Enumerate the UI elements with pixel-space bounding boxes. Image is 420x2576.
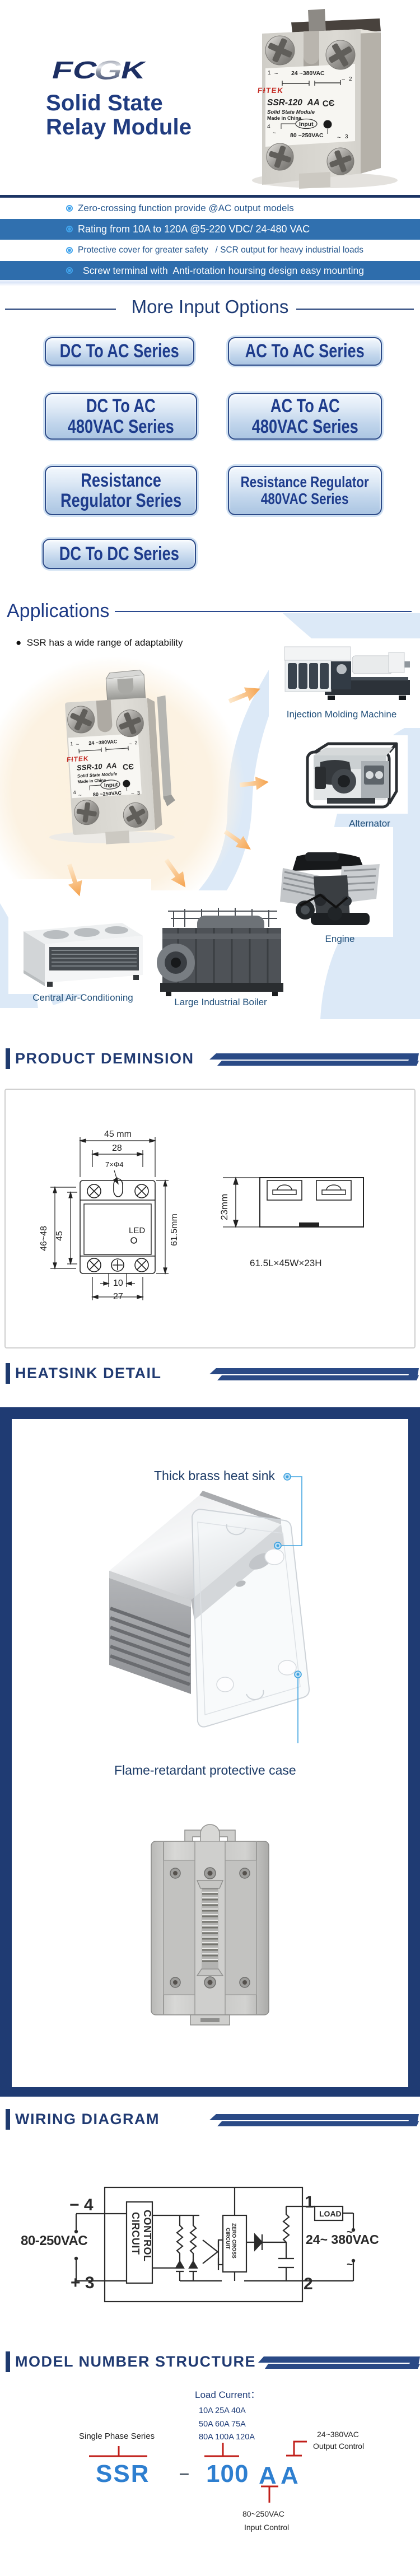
svg-text:LOAD: LOAD [319,2209,342,2218]
svg-text:24~ 380VAC: 24~ 380VAC [306,2232,379,2247]
svg-text:10A 25A 40A: 10A 25A 40A [199,2406,246,2415]
svg-text:Input Control: Input Control [244,2523,289,2532]
svg-text:27: 27 [113,1292,123,1301]
svg-text:Input: Input [299,121,314,128]
svg-text:FƗTEK: FƗTEK [257,86,284,95]
svg-text:~: ~ [131,791,135,797]
svg-text:CЄ: CЄ [322,99,335,109]
svg-text:CЄ: CЄ [123,762,134,771]
svg-text:FƗTEK: FƗTEK [67,754,89,763]
svg-text:CONTROL: CONTROL [142,2210,153,2262]
svg-text:10: 10 [113,1278,123,1288]
svg-text:2: 2 [134,740,138,745]
svg-text:~: ~ [347,2259,353,2271]
svg-text:23mm: 23mm [219,1194,230,1220]
svg-text:46~48: 46~48 [39,1226,49,1251]
svg-text:28: 28 [112,1144,122,1153]
svg-text:50A 60A 75A: 50A 60A 75A [199,2420,246,2429]
svg-text:Output Control: Output Control [313,2442,364,2451]
svg-text:45 mm: 45 mm [104,1130,132,1139]
svg-text:4: 4 [73,790,76,795]
svg-text:~: ~ [129,741,133,747]
svg-text:~: ~ [78,792,82,799]
svg-text:45: 45 [55,1231,64,1241]
svg-text:A: A [281,2462,298,2489]
svg-text:Load Current：: Load Current： [195,2390,260,2400]
svg-text:SSR-120 AA: SSR-120 AA [267,98,320,108]
svg-text:1: 1 [70,741,73,746]
svg-text:80~250VAC: 80~250VAC [242,2509,284,2518]
svg-text:A: A [259,2462,277,2489]
svg-text:80-250VAC: 80-250VAC [21,2233,87,2248]
svg-text:24~380VAC: 24~380VAC [317,2430,359,2439]
svg-text:CIRCUIT: CIRCUIT [130,2212,141,2255]
svg-text:2: 2 [304,2275,313,2293]
svg-text:3: 3 [137,790,141,796]
svg-text:Input: Input [104,782,119,789]
svg-text:Made in China: Made in China [267,115,302,121]
svg-text:3: 3 [345,134,348,140]
svg-text:1: 1 [268,70,271,76]
svg-text:61.5mm: 61.5mm [170,1214,179,1246]
svg-text:− 4: − 4 [69,2196,94,2214]
svg-text:ZERO CROSS: ZERO CROSS [231,2223,237,2258]
svg-text:CIRCUIT: CIRCUIT [225,2228,231,2250]
svg-text:~: ~ [273,130,276,137]
svg-text:–: – [179,2463,189,2483]
svg-text:Solid State Module: Solid State Module [267,109,315,115]
svg-text:~: ~ [76,741,80,748]
svg-text:24 ~380VAC: 24 ~380VAC [291,70,325,77]
svg-text:80A 100A 120A: 80A 100A 120A [199,2433,255,2442]
svg-text:61.5L×45W×23H: 61.5L×45W×23H [250,1258,322,1268]
svg-text:1: 1 [305,2193,314,2211]
svg-text:80 ~250VAC: 80 ~250VAC [290,132,324,139]
svg-text:2: 2 [349,76,352,82]
svg-text:4: 4 [267,124,270,130]
svg-text:Single Phase Series: Single Phase Series [79,2432,155,2441]
svg-text:~: ~ [274,71,278,77]
svg-text:100: 100 [206,2460,249,2488]
svg-text:~: ~ [342,77,345,83]
svg-text:SSR: SSR [96,2460,150,2488]
svg-text:7×Φ4: 7×Φ4 [105,1160,123,1169]
svg-text:+ 3: + 3 [71,2274,95,2292]
svg-text:~: ~ [337,134,340,141]
svg-text:LED: LED [129,1226,145,1235]
svg-text:~: ~ [347,2227,353,2238]
